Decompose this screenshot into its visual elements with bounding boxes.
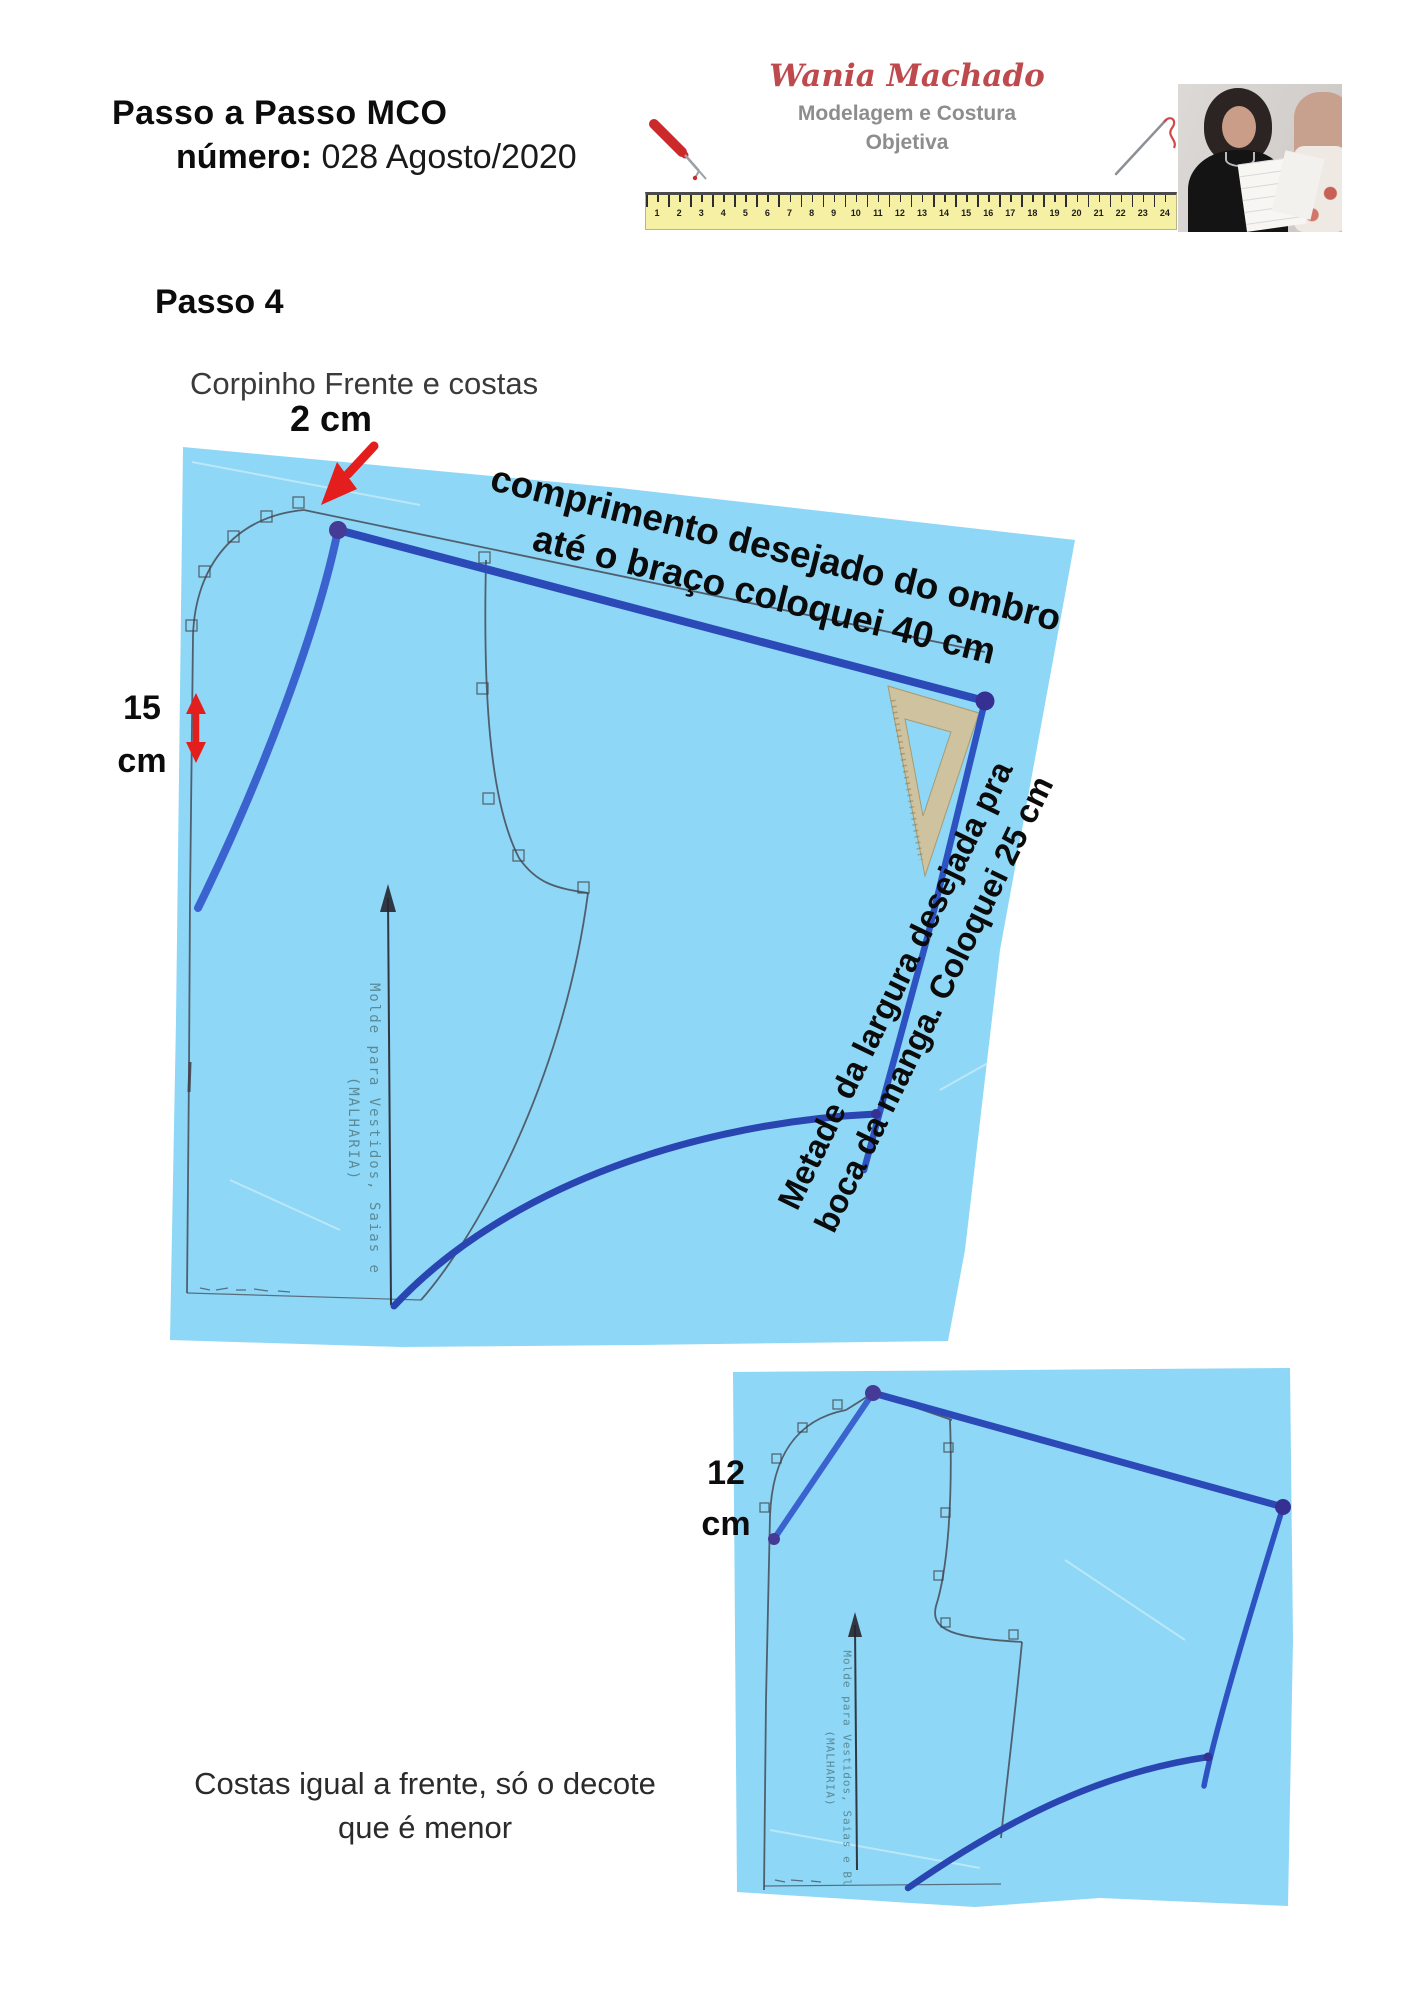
label-15cm-unit: cm xyxy=(110,735,174,788)
back-pattern-stamp: Molde para Vestidos, Saias e Bl (MALHARI… xyxy=(822,1629,855,1909)
ruler-cell: 15 xyxy=(955,195,977,229)
ruler-cell: 12 xyxy=(889,195,911,229)
label-12cm-unit: cm xyxy=(694,1499,758,1550)
ruler-cell: 21 xyxy=(1088,195,1110,229)
front-stamp-line1: Molde para Vestidos, Saias e xyxy=(363,959,384,1299)
ruler-cell: 10 xyxy=(845,195,867,229)
label-2cm: 2 cm xyxy=(290,398,372,440)
label-12cm-value: 12 xyxy=(694,1448,758,1499)
ruler-cell: 4 xyxy=(712,195,734,229)
instructor-face xyxy=(1222,106,1256,148)
back-stamp-line1: Molde para Vestidos, Saias e Bl xyxy=(838,1629,855,1909)
step-subtitle: Corpinho Frente e costas xyxy=(190,366,538,402)
back-shoulder-dot xyxy=(865,1385,881,1401)
brand-name: Wania Machado xyxy=(742,58,1072,94)
logo-ruler: 123456789101112131415161718192021222324 xyxy=(645,192,1177,230)
step-title: Passo 4 xyxy=(155,283,284,322)
ruler-cell: 7 xyxy=(778,195,800,229)
ruler-cell: 6 xyxy=(756,195,778,229)
brand-subtitle-1: Modelagem e Costura xyxy=(742,102,1072,126)
brand-subtitle-2: Objetiva xyxy=(742,131,1072,155)
ruler-cell: 5 xyxy=(734,195,756,229)
tutorial-page: Passo a Passo MCO número: 028 Agosto/202… xyxy=(0,0,1414,2000)
ruler-cell: 9 xyxy=(823,195,845,229)
ruler-cell: 19 xyxy=(1043,195,1065,229)
back-neck-dot xyxy=(768,1533,780,1545)
back-arm-dot xyxy=(1275,1499,1291,1515)
seam-ripper-icon xyxy=(648,118,712,184)
front-stamp-line2: (MALHARIA) xyxy=(342,959,363,1299)
back-junction-dot xyxy=(1204,1753,1213,1762)
issue-number-line: número: 028 Agosto/2020 xyxy=(176,138,577,177)
ruler-cell: 2 xyxy=(668,195,690,229)
ruler-cell: 17 xyxy=(999,195,1021,229)
ruler-cell: 20 xyxy=(1065,195,1087,229)
label-12cm: 12 cm xyxy=(694,1448,758,1550)
label-15cm: 15 cm xyxy=(110,682,174,787)
arm-point-dot xyxy=(976,692,995,711)
ruler-cell: 24 xyxy=(1154,195,1176,229)
issue-number-label: número: xyxy=(176,138,312,176)
ruler-cell: 1 xyxy=(646,195,668,229)
page-title: Passo a Passo MCO xyxy=(112,94,447,133)
bottom-caption-line1: Costas igual a frente, só o decote xyxy=(190,1762,660,1806)
bottom-caption-line2: que é menor xyxy=(190,1806,660,1850)
needle-thread-icon xyxy=(1108,110,1184,182)
issue-number-value: 028 Agosto/2020 xyxy=(321,138,576,176)
front-pattern-stamp: Molde para Vestidos, Saias e (MALHARIA) xyxy=(342,959,384,1299)
instructor-photo xyxy=(1178,84,1342,232)
ruler-cell: 14 xyxy=(933,195,955,229)
ruler-cell: 18 xyxy=(1021,195,1043,229)
ruler-cell: 8 xyxy=(801,195,823,229)
ruler-cell: 13 xyxy=(911,195,933,229)
shoulder-point-dot xyxy=(329,521,347,539)
ruler-cell: 11 xyxy=(867,195,889,229)
back-stamp-line2: (MALHARIA) xyxy=(822,1629,839,1909)
ruler-cell: 23 xyxy=(1132,195,1154,229)
ruler-cell: 3 xyxy=(690,195,712,229)
ruler-cell: 22 xyxy=(1110,195,1132,229)
bottom-caption: Costas igual a frente, só o decote que é… xyxy=(190,1762,660,1850)
label-15cm-value: 15 xyxy=(110,682,174,735)
ruler-cell: 16 xyxy=(977,195,999,229)
